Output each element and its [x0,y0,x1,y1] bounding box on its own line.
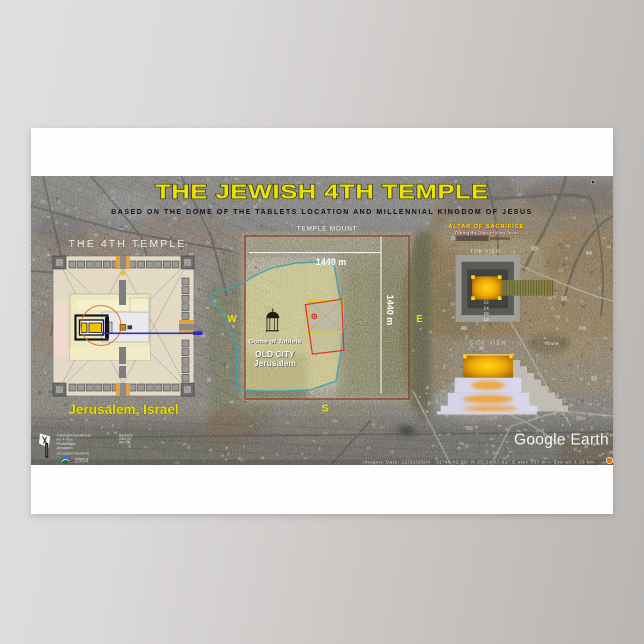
svg-text:TOP VIEW: TOP VIEW [470,249,501,255]
svg-text:TEMPLE MOUNT: TEMPLE MOUNT [297,226,358,233]
svg-text:14: 14 [484,305,490,311]
svg-text:Throne: Throne [544,341,559,346]
svg-text:Jerusalem: Jerusalem [254,358,296,368]
svg-text:During the Days of King Jesus: During the Days of King Jesus [455,231,519,236]
svg-text:18: 18 [484,317,490,323]
svg-text:W: W [227,314,237,325]
svg-text:1440 m: 1440 m [316,257,347,267]
svg-text:Jerusalem: Jerusalem [57,446,74,450]
svg-text:THE 4TH TEMPLE: THE 4TH TEMPLE [69,238,187,250]
svg-text:1440 m: 1440 m [385,295,395,326]
svg-text:Dome of Tablets: Dome of Tablets [249,339,302,346]
svg-text:BASED ON THE DOME OF THE TABLE: BASED ON THE DOME OF THE TABLETS LOCATIO… [111,209,533,216]
svg-text:S: S [321,403,328,415]
svg-text:16: 16 [484,311,490,317]
svg-text:Old City: Old City [119,441,131,445]
svg-text:12: 12 [484,300,490,306]
svg-text:ALTAR OF SACRIFICE: ALTAR OF SACRIFICE [449,224,525,230]
svg-text:E: E [416,314,423,325]
svg-text:Jerusalem, Israel: Jerusalem, Israel [68,402,178,417]
svg-text:SIDE VIEW: SIDE VIEW [470,341,508,347]
svg-text:Jerusalem tomorrow: Jerusalem tomorrow [57,452,90,456]
svg-text:THE JEWISH 4TH TEMPLE: THE JEWISH 4TH TEMPLE [155,180,488,203]
svg-text:Google Earth: Google Earth [514,432,609,449]
